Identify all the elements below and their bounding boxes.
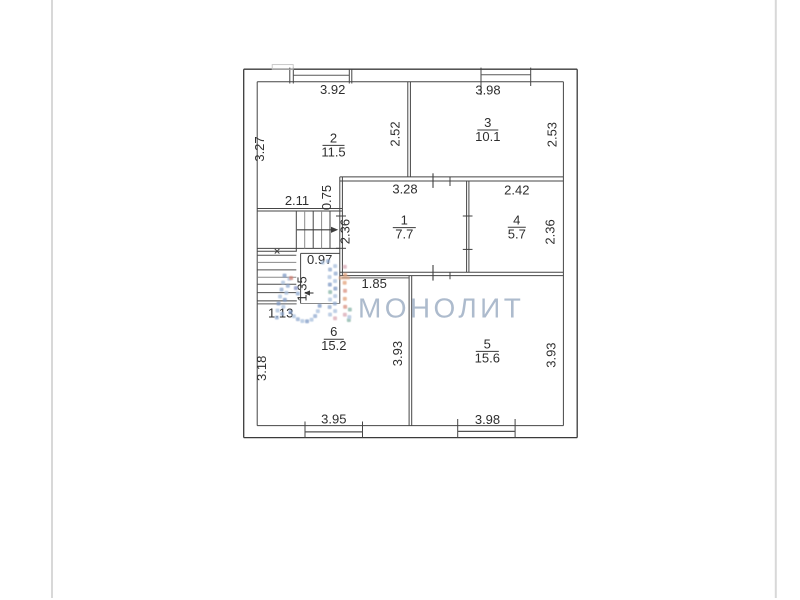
svg-text:2.52: 2.52 [387,121,402,146]
svg-text:2.36: 2.36 [543,219,558,244]
svg-text:МОНОЛИТ: МОНОЛИТ [358,293,524,324]
svg-text:15.2: 15.2 [321,338,346,353]
svg-text:2.53: 2.53 [544,122,559,147]
svg-text:2.11: 2.11 [285,193,309,208]
svg-text:2.36: 2.36 [338,219,353,244]
svg-text:2.42: 2.42 [504,182,529,197]
svg-text:6: 6 [330,324,337,339]
svg-text:3.18: 3.18 [254,356,269,381]
svg-text:11.5: 11.5 [321,144,345,159]
svg-text:3.98: 3.98 [475,412,500,427]
svg-text:1.85: 1.85 [362,276,387,291]
svg-text:3.28: 3.28 [392,182,417,197]
svg-text:0.75: 0.75 [319,185,334,210]
svg-text:7.7: 7.7 [395,227,413,242]
svg-text:2: 2 [330,130,337,145]
svg-text:3.92: 3.92 [320,82,345,97]
svg-text:1: 1 [401,213,408,228]
svg-text:15.6: 15.6 [475,350,500,365]
svg-text:3.93: 3.93 [390,341,405,366]
svg-text:10.1: 10.1 [475,129,500,144]
svg-text:3.95: 3.95 [321,411,346,426]
svg-text:3: 3 [484,115,491,130]
svg-text:3.27: 3.27 [252,136,267,161]
svg-text:3.98: 3.98 [475,82,500,97]
svg-text:4: 4 [513,212,520,227]
svg-text:5: 5 [484,336,491,351]
svg-text:5.7: 5.7 [508,226,526,241]
svg-text:3.93: 3.93 [543,342,558,367]
